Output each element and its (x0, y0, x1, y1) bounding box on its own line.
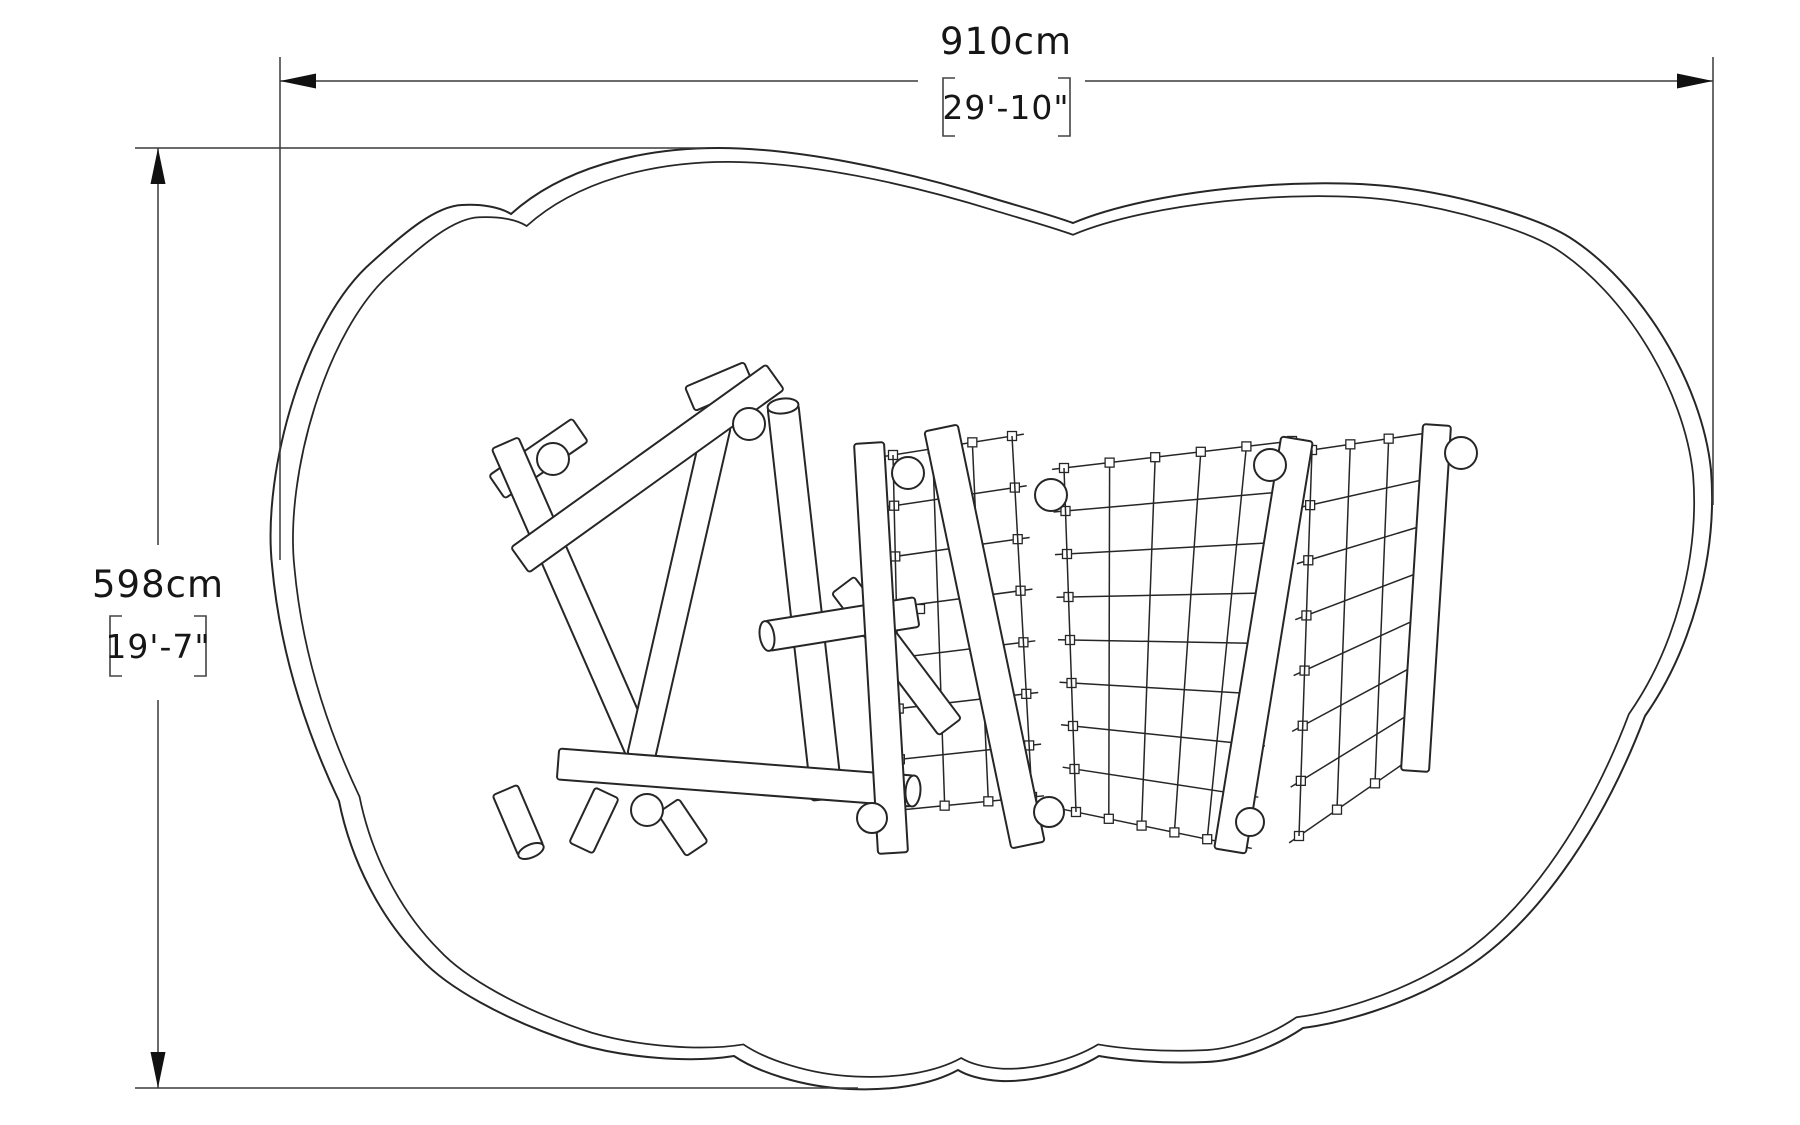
log-end-ball-top (733, 408, 765, 440)
height-arrow-bottom (151, 1052, 166, 1088)
net-post-3 (1214, 436, 1313, 853)
net-rope-horizontal (1054, 491, 1298, 512)
net-rope-horizontal (1057, 593, 1285, 598)
net-connector (1346, 440, 1355, 449)
net-connector (968, 438, 977, 447)
width-arrow-right (1677, 74, 1713, 89)
net-connector (1196, 447, 1205, 456)
net-rope-horizontal (1055, 542, 1291, 555)
post-ball-3-bottom (1236, 808, 1264, 836)
net-post-2 (924, 425, 1044, 849)
post-ball-3-top (1254, 449, 1286, 481)
height-dimension-label: 598cm (92, 563, 224, 606)
net-connector (1384, 434, 1393, 443)
height-arrow-top (151, 148, 166, 184)
net-rope-vertical (1109, 463, 1110, 819)
log-right-leg-body (768, 404, 843, 800)
log-end-ball-upper-left (537, 443, 569, 475)
plan-drawing-canvas: 910cm 29'-10" 598cm 19'-7" (0, 0, 1800, 1125)
log-stub-bottom-right-body (657, 799, 708, 857)
net-rope-horizontal (1300, 431, 1439, 452)
post-ball-1 (892, 457, 924, 489)
log-stub-bottom-mid-body (569, 787, 619, 853)
log-end-ball-bottom-mid (857, 803, 887, 833)
width-dimension-label: 910cm (940, 20, 1072, 63)
post-ball-4 (1445, 437, 1477, 469)
net-connector (1170, 828, 1179, 837)
post-ball-2-top (1035, 479, 1067, 511)
height-dimension-alt-label: 19'-7" (105, 627, 210, 666)
log-right-leg (767, 397, 843, 801)
log-stub-bottom-left (493, 785, 546, 863)
net-post-4 (1401, 424, 1451, 772)
net-connector (940, 801, 949, 810)
net-post-3-body (1214, 436, 1313, 853)
net-connector (1137, 821, 1146, 830)
log-stub-bottom-mid (569, 787, 619, 853)
playground-plan-drawing: 910cm 29'-10" 598cm 19'-7" (0, 0, 1800, 1125)
net-post-4-body (1401, 424, 1451, 772)
net-connector (1151, 453, 1160, 462)
net-rope-horizontal (1298, 477, 1436, 508)
net-connector (1333, 805, 1342, 814)
net-connector (1371, 779, 1380, 788)
net-rope-horizontal (1058, 640, 1278, 644)
log-stub-bottom-right (657, 799, 708, 857)
net-connector (1104, 814, 1113, 823)
width-dimension-alt-label: 29'-10" (942, 88, 1069, 127)
net-connector (984, 797, 993, 806)
net-connector (1242, 442, 1251, 451)
height-dimension: 598cm 19'-7" (92, 148, 858, 1088)
width-arrow-left (280, 74, 316, 89)
log-end-ball-bottom-left (631, 794, 663, 826)
net-connector (1203, 835, 1212, 844)
post-ball-2-bottom (1034, 797, 1064, 827)
net-post-2-body (924, 425, 1044, 849)
net-connector (1105, 458, 1114, 467)
